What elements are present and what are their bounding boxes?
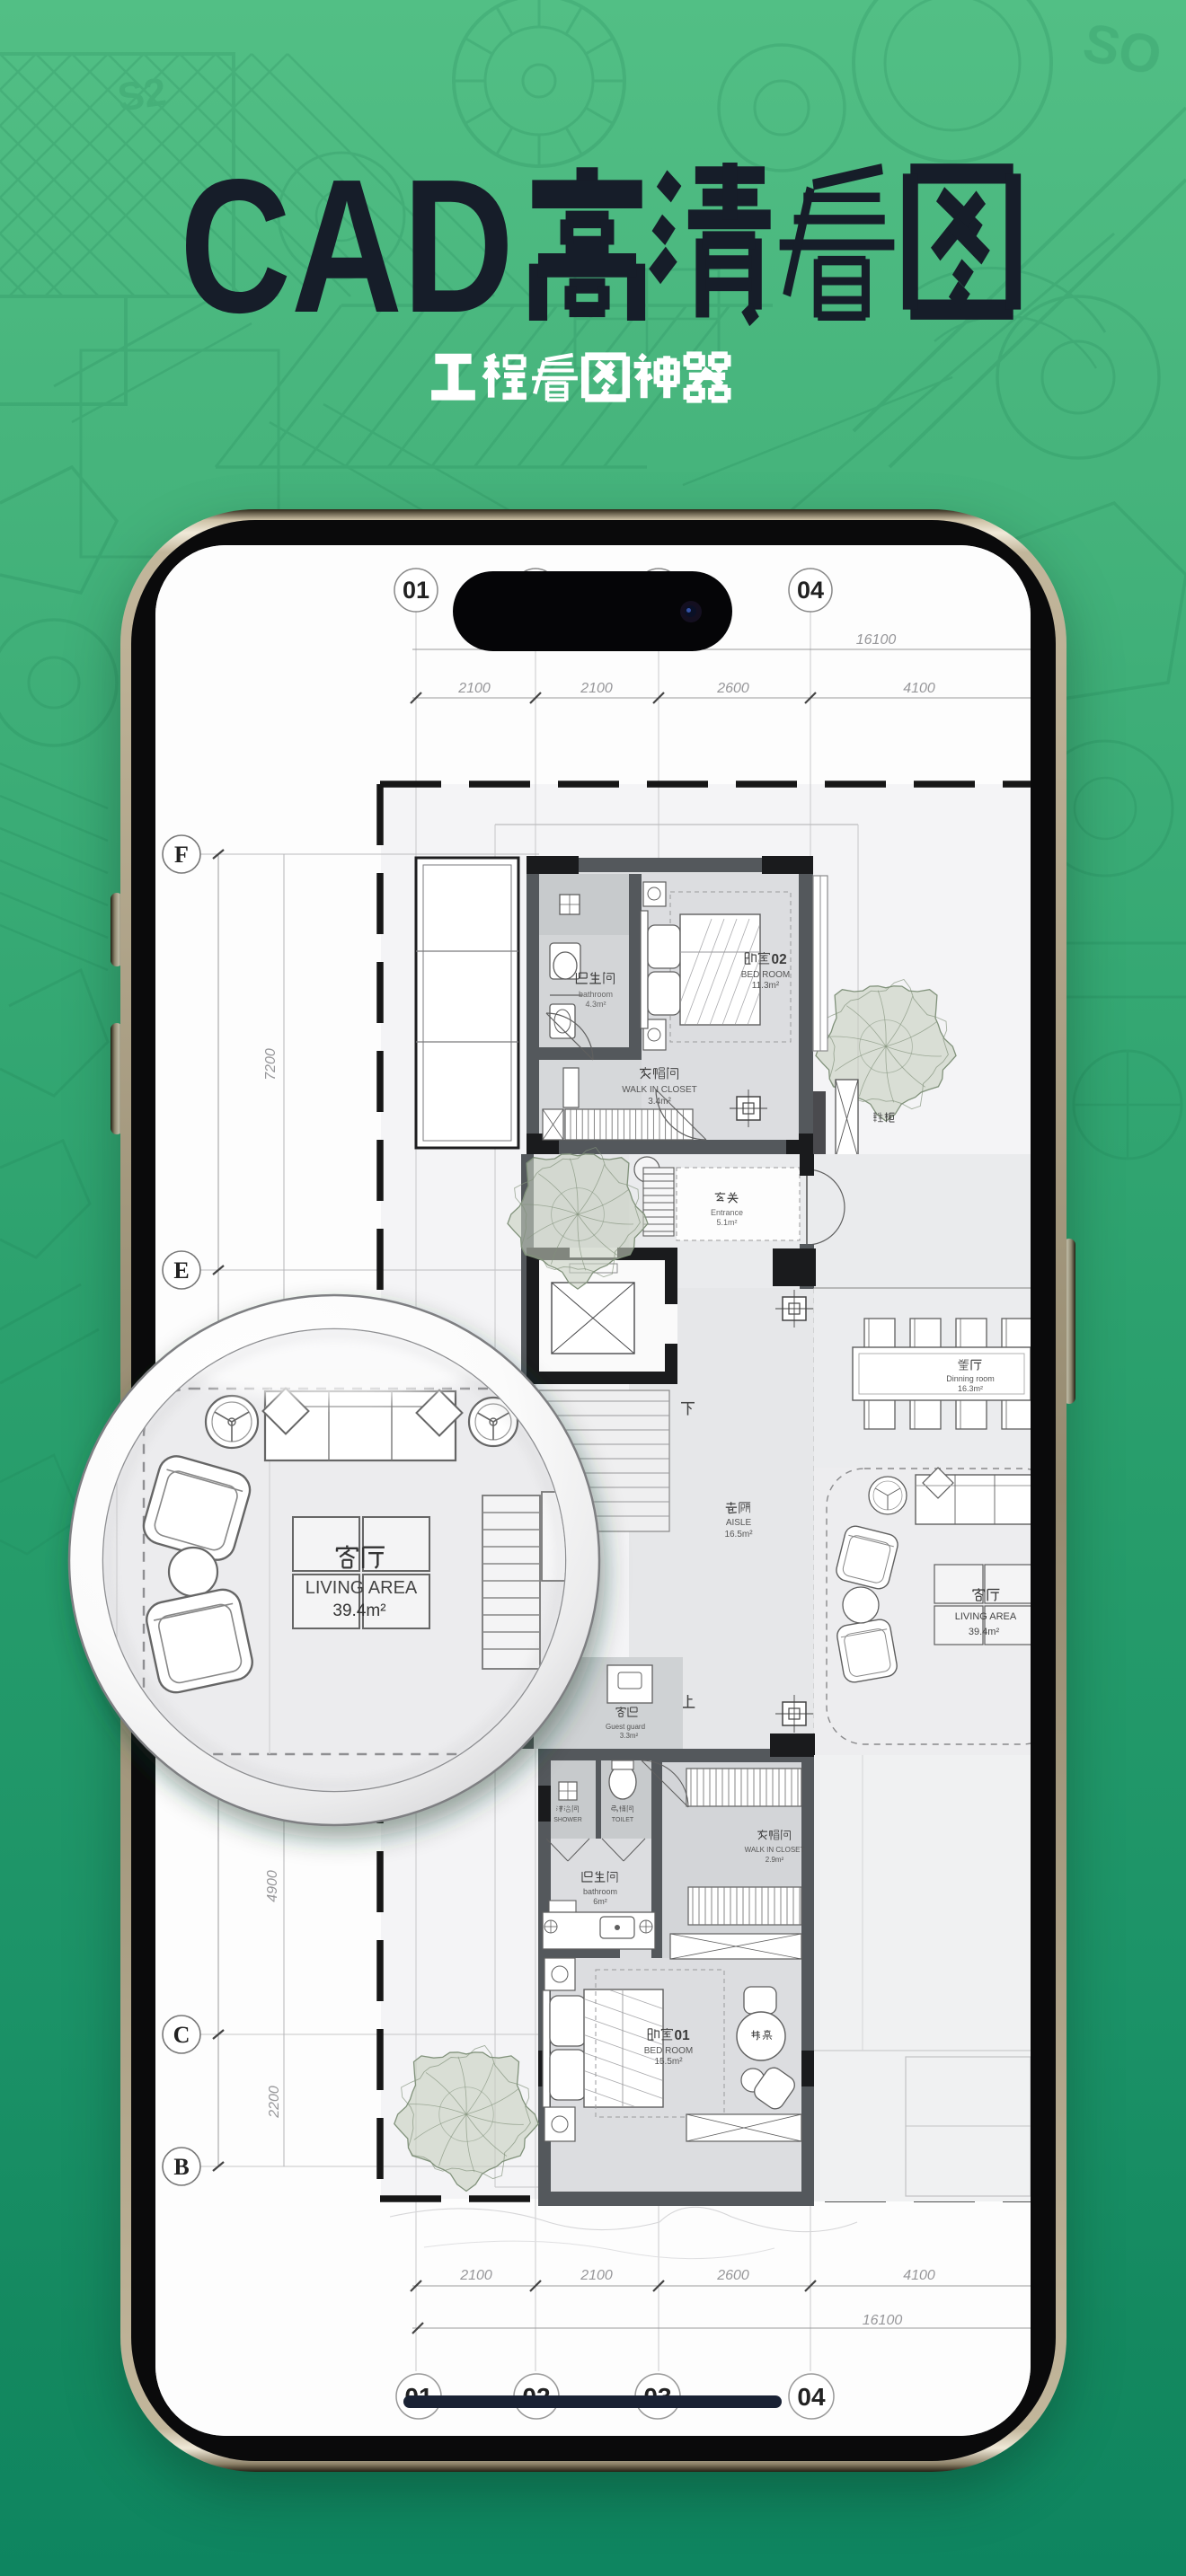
svg-text:LIVING AREA: LIVING AREA	[305, 1578, 418, 1598]
svg-text:39.4m²: 39.4m²	[332, 1601, 385, 1620]
